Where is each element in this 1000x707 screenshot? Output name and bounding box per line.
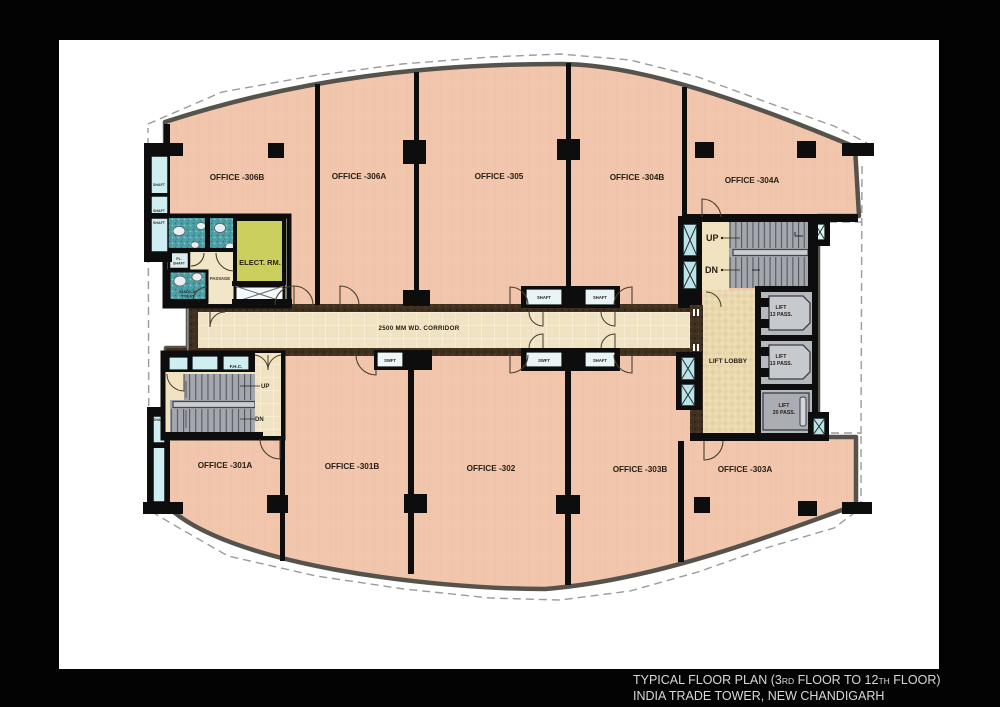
- svg-text:13 PASS.: 13 PASS.: [770, 361, 793, 367]
- svg-text:OFFICE -306A: OFFICE -306A: [332, 172, 387, 181]
- svg-text:SHAFT: SHAFT: [153, 221, 166, 225]
- svg-text:OFFICE -304A: OFFICE -304A: [725, 176, 780, 185]
- svg-text:SHAFT: SHAFT: [593, 358, 607, 363]
- svg-text:DN: DN: [255, 417, 264, 423]
- svg-text:SHAFT: SHAFT: [153, 209, 166, 213]
- svg-text:LIFT: LIFT: [776, 354, 788, 360]
- svg-text:UP: UP: [261, 384, 269, 390]
- svg-text:SHAFT: SHAFT: [593, 295, 607, 300]
- svg-text:SHAFT: SHAFT: [537, 295, 551, 300]
- svg-text:OFFICE -302: OFFICE -302: [467, 464, 516, 473]
- svg-text:LIFT: LIFT: [776, 305, 788, 311]
- svg-text:SHAFT: SHAFT: [173, 262, 186, 266]
- svg-text:SHAFT: SHAFT: [153, 183, 166, 187]
- svg-text:2500 MM WD. CORRIDOR: 2500 MM WD. CORRIDOR: [379, 325, 460, 332]
- svg-text:OFFICE -303A: OFFICE -303A: [718, 465, 773, 474]
- svg-text:DN: DN: [705, 265, 718, 275]
- svg-text:OFFICE -301B: OFFICE -301B: [325, 462, 380, 471]
- svg-text:20 PASS.: 20 PASS.: [773, 410, 796, 416]
- svg-text:PL.: PL.: [176, 257, 182, 261]
- svg-text:OFFICE -306B: OFFICE -306B: [210, 173, 265, 182]
- svg-text:SWFT: SWFT: [384, 358, 396, 363]
- svg-text:OFFICE -305: OFFICE -305: [475, 172, 524, 181]
- svg-text:INDIA TRADE TOWER, NEW CHANDIG: INDIA TRADE TOWER, NEW CHANDIGARH: [633, 689, 884, 703]
- svg-text:OFFICE -304B: OFFICE -304B: [610, 173, 665, 182]
- svg-text:LIFT LOBBY: LIFT LOBBY: [709, 358, 748, 365]
- svg-text:UP: UP: [706, 233, 719, 243]
- svg-text:ELECT. RM.: ELECT. RM.: [239, 258, 281, 267]
- svg-text:OFFICE -301A: OFFICE -301A: [198, 461, 253, 470]
- svg-text:OFFICE -303B: OFFICE -303B: [613, 465, 668, 474]
- svg-text:PASSAGE: PASSAGE: [210, 276, 230, 281]
- svg-text:LIFT: LIFT: [779, 403, 791, 409]
- svg-text:F.H.C.: F.H.C.: [230, 364, 243, 369]
- svg-text:13 PASS.: 13 PASS.: [770, 312, 793, 318]
- svg-text:SWFT: SWFT: [538, 358, 550, 363]
- svg-text:TYPICAL FLOOR PLAN (3RD FLOOR: TYPICAL FLOOR PLAN (3RD FLOOR TO 12TH FL…: [633, 673, 941, 687]
